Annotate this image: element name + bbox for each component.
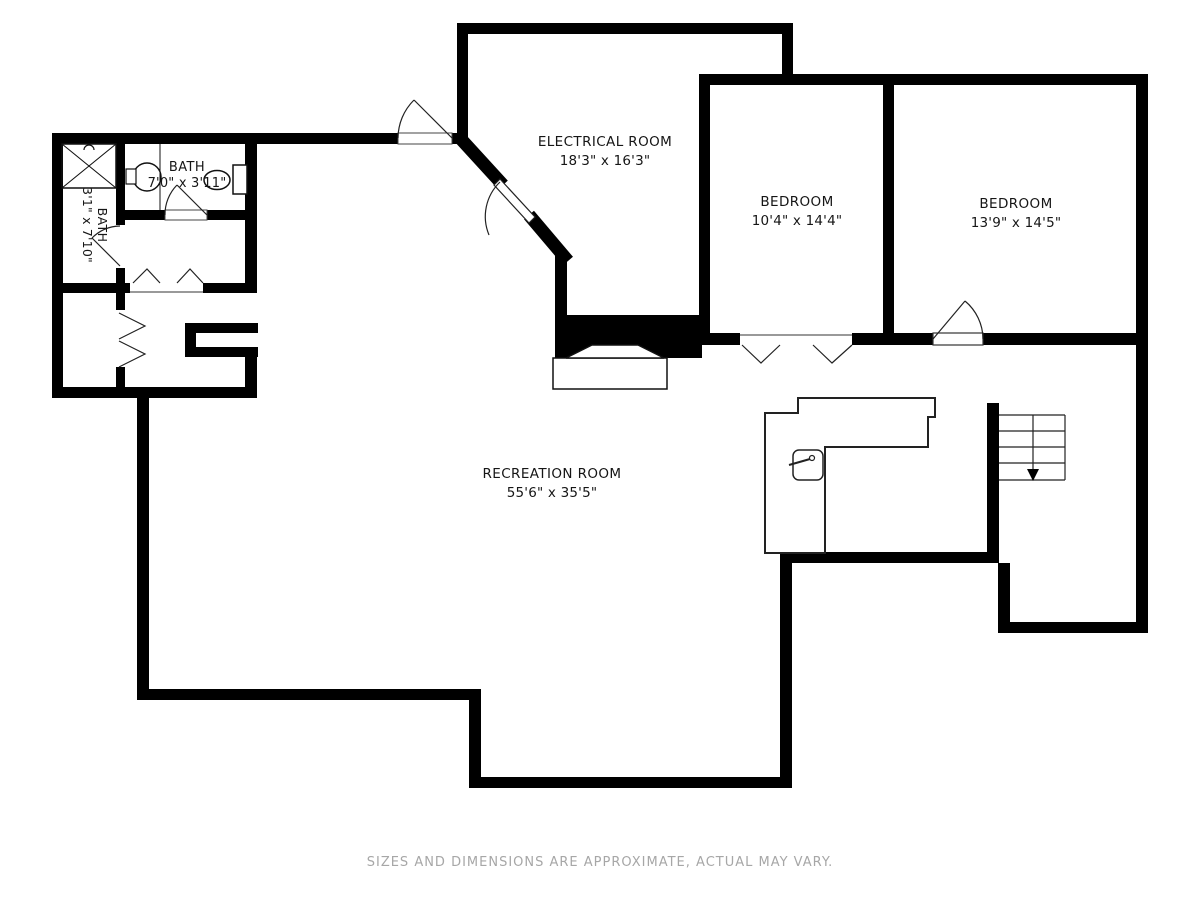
bedroom1-bifold-left xyxy=(742,345,780,363)
bath-door-threshold xyxy=(165,210,207,220)
hall-bifold-right xyxy=(177,269,203,283)
room-name: BATH xyxy=(148,160,227,176)
room-dims: 3'1" x 7'10" xyxy=(80,187,95,263)
room-name: BATH xyxy=(95,187,110,263)
room-dims: 7'0" x 3'11" xyxy=(148,176,227,192)
floor-plan: ELECTRICAL ROOM 18'3" x 16'3" BEDROOM 10… xyxy=(0,0,1200,900)
room-name: ELECTRICAL ROOM xyxy=(538,133,672,152)
bedroom2-door-threshold xyxy=(933,333,983,345)
shower-head-icon xyxy=(84,145,94,150)
room-dims: 55'6" x 35'5" xyxy=(483,484,622,503)
utility-valve-knob xyxy=(810,456,815,461)
room-name: BEDROOM xyxy=(971,195,1062,214)
electrical-door-threshold xyxy=(398,133,452,144)
room-label-bedroom-1: BEDROOM 10'4" x 14'4" xyxy=(752,193,843,231)
room-dims: 10'4" x 14'4" xyxy=(752,212,843,231)
room-dims: 18'3" x 16'3" xyxy=(538,152,672,171)
stair-down-arrow-icon xyxy=(1027,469,1039,481)
room-label-electrical: ELECTRICAL ROOM 18'3" x 16'3" xyxy=(538,133,672,171)
room-label-recreation: RECREATION ROOM 55'6" x 35'5" xyxy=(483,465,622,503)
toilet-tank xyxy=(233,165,247,194)
hall-bifold-left xyxy=(133,269,160,283)
bedroom1-bifold-right xyxy=(813,345,852,363)
electrical-door-leaf xyxy=(414,100,452,138)
room-name: RECREATION ROOM xyxy=(483,465,622,484)
disclaimer-text: SIZES AND DIMENSIONS ARE APPROXIMATE, AC… xyxy=(367,855,834,870)
bathleft-door-opening xyxy=(116,225,125,268)
landing-room xyxy=(765,398,935,553)
utility-appliance-icon xyxy=(793,450,823,480)
room-label-bath-left: BATH 3'1" x 7'10" xyxy=(80,187,110,263)
room-dims: 13'9" x 14'5" xyxy=(971,214,1062,233)
diagonal-wall-upper xyxy=(460,138,503,185)
room-name: BEDROOM xyxy=(752,193,843,212)
landing-room-outline xyxy=(765,398,935,553)
electrical-door-arc xyxy=(398,100,414,138)
diagonal-wall-lower xyxy=(529,215,568,261)
hearth xyxy=(553,358,667,389)
room-label-bath-top: BATH 7'0" x 3'11" xyxy=(148,160,227,192)
sink-faucet xyxy=(126,169,136,184)
room-label-bedroom-2: BEDROOM 13'9" x 14'5" xyxy=(971,195,1062,233)
diagonal-door-leaf xyxy=(494,179,535,223)
staircase xyxy=(999,415,1065,481)
